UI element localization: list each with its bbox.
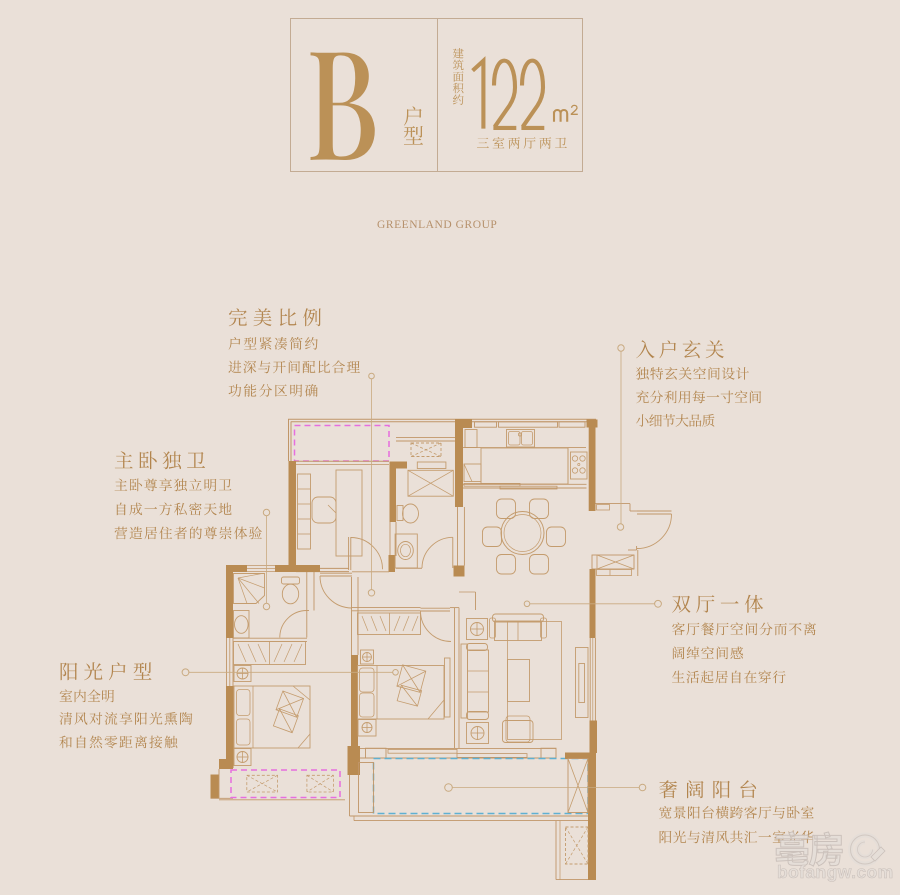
svg-text:bofangw.com: bofangw.com [777,862,894,882]
